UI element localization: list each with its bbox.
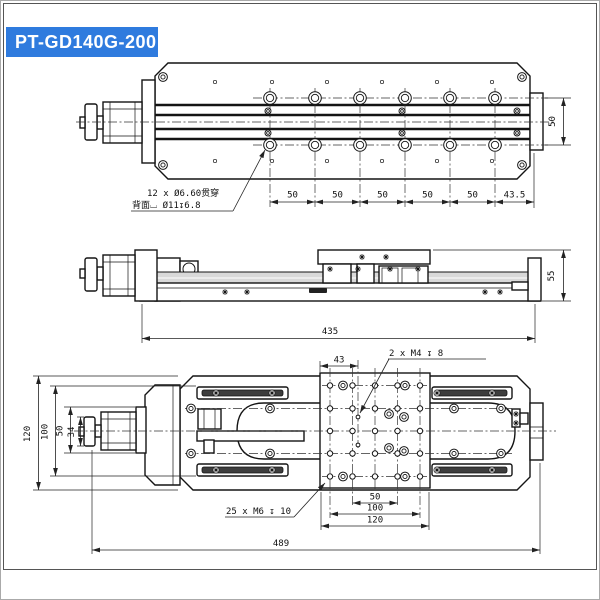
side-view-carriage — [318, 250, 430, 283]
side-view: 435 55 — [80, 250, 571, 343]
side-view-stop-block — [512, 282, 528, 290]
dim-length: 435 — [322, 327, 338, 337]
top-view-width-dimension: 50 — [545, 98, 571, 145]
hole-note-line1: 12 x Ø6.60贯穿 — [147, 187, 219, 199]
hole-note-line2: 背面⌴ Ø11↧6.8 — [132, 199, 201, 211]
top-view-base-plate — [155, 63, 530, 179]
dim-left-34: 34 — [67, 427, 77, 438]
m6-note-text: 25 x M6 ↧ 10 — [226, 507, 291, 517]
dim-pitch-5: 50 — [467, 191, 478, 201]
bottom-view-end-cap — [530, 403, 543, 460]
dim-pitch-4: 50 — [422, 191, 433, 201]
top-view: 50 50 50 50 50 43.5 50 12 x Ø6.60贯穿 背面⌴ … — [76, 63, 571, 211]
dim-hole-row-spacing: 50 — [548, 116, 558, 127]
top-view-motor — [80, 80, 155, 163]
dim-left-100: 100 — [41, 424, 51, 440]
dim-pitch-6: 43.5 — [504, 191, 526, 201]
technical-drawing: 50 50 50 50 50 43.5 50 12 x Ø6.60贯穿 背面⌴ … — [0, 0, 600, 600]
top-view-end-cap — [530, 93, 543, 150]
dim-left-50: 50 — [56, 426, 66, 437]
side-view-length-dimension: 435 — [142, 304, 535, 343]
dim-bottom-100: 100 — [367, 504, 383, 514]
side-view-end-plate — [528, 258, 541, 301]
limit-block — [204, 440, 214, 453]
dim-left-120: 120 — [23, 426, 33, 442]
drawing-page: PT-GD140G-200 — [0, 0, 600, 600]
dim-height: 55 — [547, 271, 557, 282]
side-view-base — [140, 283, 540, 301]
dim-offset: 43 — [334, 356, 345, 366]
bottom-view-adapter-block — [145, 385, 180, 485]
dim-overall: 489 — [273, 539, 289, 549]
coupling-block — [198, 409, 221, 429]
brand-mark — [309, 288, 327, 293]
m4-note-text: 2 x M4 ↧ 8 — [389, 349, 443, 359]
dim-pitch-3: 50 — [377, 191, 388, 201]
dim-bottom-50: 50 — [370, 493, 381, 503]
bottom-view: 43 2 x M4 ↧ 8 25 x M6 ↧ 10 50 100 120 48… — [23, 349, 556, 554]
dim-bottom-120: 120 — [367, 516, 383, 526]
dim-pitch-2: 50 — [332, 191, 343, 201]
bottom-view-motor — [79, 407, 146, 453]
side-view-motor — [80, 250, 157, 301]
bottom-dimensions: 50 100 120 — [321, 492, 429, 530]
right-bracket-2 — [520, 413, 528, 424]
dim-pitch-1: 50 — [287, 191, 298, 201]
